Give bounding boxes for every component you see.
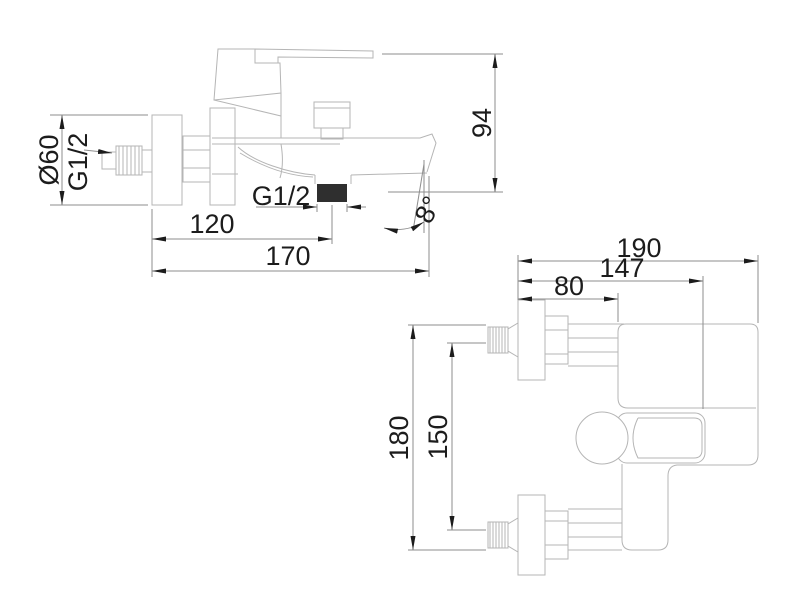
top-thread [488,327,508,353]
dim-height-94: 94 [382,54,503,192]
dim-inlet-spacing-label: 150 [423,414,453,459]
dim-body-width-label: 147 [599,253,644,283]
dim-diameter-label: Ø60 [34,134,64,185]
bottom-thread [488,522,508,548]
dim-outlet-thread: G1/2 [252,181,366,212]
dim-height-label: 94 [467,108,497,138]
drawing-canvas: Ø60 G1/2 94 G1/2 120 170 [0,0,800,600]
thread-collar [142,150,152,172]
dim-plate-offset-label: 80 [554,271,584,301]
inlet-thread [116,146,142,175]
faucet-technical-drawing: Ø60 G1/2 94 G1/2 120 170 [0,0,800,600]
handle-lever-front [617,413,705,463]
dim-inlet-thread: G1/2 [63,133,112,192]
bottom-escutcheon-plate [518,495,545,575]
dim-inlet-spacing: 150 [423,343,486,530]
dim-outlet-thread-label: G1/2 [252,181,311,211]
shower-outlet [317,184,347,202]
handle-base [214,49,281,100]
dim-body-width: 147 [518,253,703,409]
outlet-boss [315,175,351,184]
spout [212,134,436,184]
dim-length-label: 170 [265,241,310,271]
dim-total-height-label: 180 [384,415,414,460]
bottom-inlet [488,495,622,575]
bottom-hex-nut [545,511,568,559]
top-escutcheon-plate [518,300,545,380]
top-hex-nut [545,316,568,364]
handle-pivot [576,412,628,464]
side-view: Ø60 G1/2 94 G1/2 120 170 [34,49,503,277]
handle-recess-line [618,398,756,408]
bottom-taper [508,518,518,552]
wall-escutcheon-plate [152,115,182,205]
inlet-stub-pipe [102,152,116,169]
handle-lever [255,49,373,63]
diverter-knob [314,102,350,139]
hex-nut [183,136,210,182]
top-inlet [488,300,624,380]
top-taper [508,323,518,357]
dim-spout-angle: 8° [384,160,447,233]
dim-inlet-thread-label: G1/2 [63,133,93,192]
front-view: 190 147 80 180 150 [384,233,758,575]
cartridge-body-edge [280,93,282,178]
dim-outlet-offset-label: 120 [189,209,234,239]
check-valve-body [210,108,235,205]
spout-underside [238,147,315,175]
